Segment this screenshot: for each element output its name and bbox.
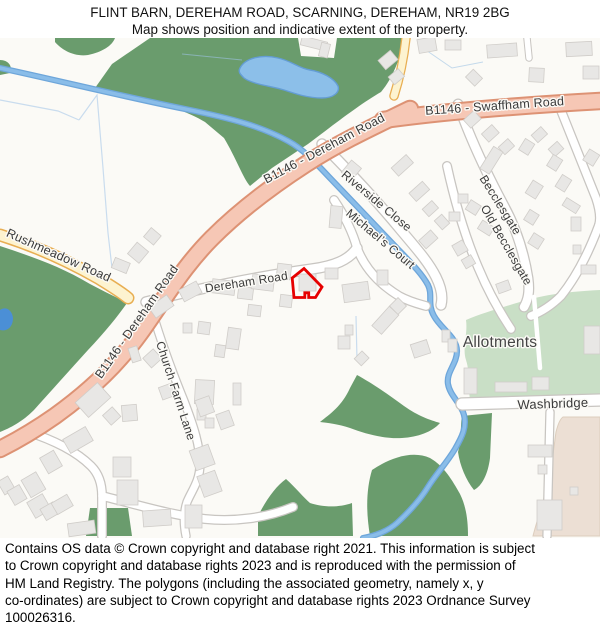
map-container: B1146 - Swaffham Road B1146 - Dereham Ro… <box>0 38 600 538</box>
label-allotments: Allotments <box>463 334 537 351</box>
page-subtitle: Map shows position and indicative extent… <box>0 21 600 38</box>
map-canvas: B1146 - Swaffham Road B1146 - Dereham Ro… <box>0 38 600 538</box>
footer-line: HM Land Registry. The polygons (includin… <box>5 575 600 592</box>
page-title: FLINT BARN, DEREHAM ROAD, SCARNING, DERE… <box>0 0 600 21</box>
footer-line: co-ordinates) are subject to Crown copyr… <box>5 592 600 609</box>
copyright-footer: Contains OS data © Crown copyright and d… <box>0 538 600 625</box>
label-washbridge: Washbridge <box>517 395 588 412</box>
footer-line: 100026316. <box>5 609 600 626</box>
map-title-block: FLINT BARN, DEREHAM ROAD, SCARNING, DERE… <box>0 0 600 38</box>
footer-line: to Crown copyright and database rights 2… <box>5 557 600 574</box>
footer-line: Contains OS data © Crown copyright and d… <box>5 540 600 557</box>
